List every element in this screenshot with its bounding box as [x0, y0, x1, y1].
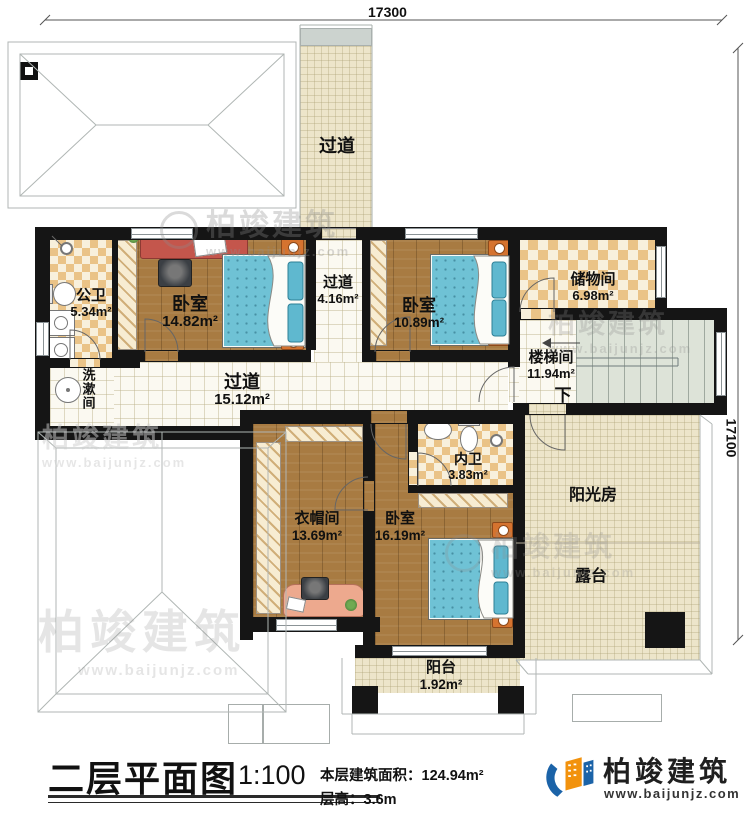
room-label-public-bath: 公卫 5.34m²	[70, 288, 111, 319]
door-gap	[70, 359, 100, 367]
room-name: 过道	[319, 136, 355, 156]
watermark: 柏竣建筑 www.baijunjz.com	[38, 596, 246, 679]
room-name: 卧室	[385, 510, 415, 527]
room-label-bedroom3: 卧室 16.19m²	[375, 511, 425, 543]
room-area: 10.89m²	[394, 315, 444, 330]
nightstand-icon	[488, 330, 510, 346]
watermark: 柏竣建筑 www.baijunjz.com	[42, 416, 186, 470]
room-label-sunroom: 阳光房	[569, 487, 617, 505]
area-label: 本层建筑面积：	[320, 768, 422, 784]
room-name: 洗漱间	[81, 368, 96, 410]
watermark-url: www.baijunjz.com	[491, 565, 635, 580]
room-label-balcony: 阳台 1.92m²	[420, 660, 463, 692]
nightstand-icon	[488, 240, 510, 256]
cloakroom-wardrobe-top	[285, 426, 363, 442]
stairs-down-label: 下	[555, 386, 572, 405]
nightstand-icon	[492, 612, 513, 628]
watermark: 柏竣建筑 www.baijunjz.com	[445, 525, 635, 580]
brand-logo: 柏竣建筑 www.baijunjz.com	[543, 748, 743, 808]
door-gap	[376, 351, 410, 361]
watermark-text: 柏竣建筑	[206, 200, 350, 244]
toilet-icon	[460, 426, 478, 452]
lower-roof-structure	[228, 704, 330, 744]
plan-height-line: 层高：3.6m	[320, 788, 397, 809]
window	[36, 322, 49, 356]
down-text: 下	[555, 386, 572, 405]
dimension-right: 17100	[723, 419, 739, 458]
room-area: 14.82m²	[162, 314, 218, 331]
door-gap	[409, 452, 417, 485]
watermark-text: 柏竣建筑	[42, 416, 186, 455]
brand-logo-icon	[543, 750, 597, 804]
floor-plan-page: 17300 17100 过道 公卫 5.34m² 卧室 14.82m² 过道 4…	[0, 0, 750, 816]
chimney-icon	[20, 62, 38, 80]
balcony-pillar	[498, 686, 524, 714]
plan-area-line: 本层建筑面积：124.94m²	[320, 764, 484, 785]
door-gap	[509, 368, 519, 402]
watermark-logo-icon	[160, 211, 198, 249]
floor-drain-icon	[490, 434, 503, 447]
watermark-logo-icon	[445, 534, 483, 572]
brand-name: 柏竣建筑	[603, 750, 731, 790]
room-name: 阳光房	[569, 487, 617, 504]
watermark-url: www.baijunjz.com	[206, 244, 350, 259]
room-name: 衣帽间	[294, 510, 339, 527]
door-gap	[529, 404, 566, 414]
room-area: 13.69m²	[292, 528, 342, 543]
sink-bowl-icon	[54, 316, 68, 330]
nightstand-icon	[281, 333, 304, 350]
room-area: 1.92m²	[420, 677, 463, 692]
wall	[408, 485, 513, 493]
sink-bowl-icon	[54, 343, 68, 357]
room-label-bedroom2: 卧室 10.89m²	[394, 296, 444, 330]
room-label-bedroom1: 卧室 14.82m²	[162, 294, 218, 331]
computer-monitor-icon	[301, 577, 329, 600]
watermark-text: 柏竣建筑	[38, 596, 246, 662]
room-name: 内卫	[454, 451, 482, 467]
room-area: 16.19m²	[375, 528, 425, 543]
room-label-corridor-mid: 过道 4.16m²	[317, 275, 358, 306]
room-name: 储物间	[570, 271, 615, 288]
room-label-corridor-main: 过道 15.12m²	[214, 372, 270, 409]
bedroom1-wardrobe	[117, 240, 137, 350]
window	[276, 619, 337, 631]
room-name: 过道	[323, 274, 353, 291]
wash-basin-drain	[66, 388, 70, 392]
window	[716, 332, 726, 396]
watermark-url: www.baijunjz.com	[548, 341, 692, 356]
lower-roof-structure	[572, 694, 662, 722]
room-name: 公卫	[76, 287, 106, 304]
height-label: 层高：	[320, 792, 364, 808]
room-area: 11.94m²	[527, 367, 575, 382]
room-name: 卧室	[402, 296, 436, 315]
room-name: 阳台	[426, 659, 456, 676]
watermark: 柏竣建筑 www.baijunjz.com	[160, 200, 350, 259]
watermark-text: 柏竣建筑	[491, 525, 635, 565]
room-label-washroom: 洗漱间	[80, 368, 95, 410]
plant-icon	[345, 599, 357, 611]
wall	[508, 227, 520, 367]
computer-monitor-icon	[158, 259, 192, 287]
dimension-top: 17300	[368, 4, 407, 20]
room-area: 15.12m²	[214, 392, 270, 409]
wall	[112, 227, 118, 358]
area-value: 124.94m²	[422, 768, 484, 784]
lower-roof-structure	[262, 704, 264, 744]
window	[405, 228, 478, 239]
sliding-door	[392, 646, 487, 656]
wall	[362, 227, 370, 350]
plan-scale: 1:100	[238, 760, 306, 791]
bed-mattress	[224, 256, 276, 346]
room-area: 3.83m²	[448, 468, 488, 482]
room-label-corridor-top: 过道	[319, 136, 355, 156]
watermark-url: www.baijunjz.com	[42, 455, 186, 470]
bedroom2-wardrobe	[370, 240, 387, 346]
watermark: 柏竣建筑 www.baijunjz.com	[548, 302, 692, 356]
room-label-cloakroom: 衣帽间 13.69m²	[292, 511, 342, 543]
watermark-url: www.baijunjz.com	[78, 662, 246, 679]
door-gap	[371, 411, 407, 423]
corridor-roof-band	[300, 28, 372, 46]
height-value: 3.6m	[364, 792, 397, 808]
brand-website: www.baijunjz.com	[604, 786, 740, 801]
room-name: 卧室	[172, 294, 208, 314]
door-gap	[364, 481, 374, 511]
room-area: 5.34m²	[70, 305, 111, 320]
door-gap	[145, 351, 178, 361]
room-name: 过道	[224, 372, 260, 392]
window	[656, 246, 666, 298]
balcony-pillar	[352, 686, 378, 714]
bedroom3-wardrobe	[418, 493, 508, 508]
room-label-storage: 储物间 6.98m²	[570, 272, 615, 303]
room-area: 4.16m²	[317, 292, 358, 307]
cloakroom-wardrobe-left	[256, 442, 281, 614]
shower-head-icon	[60, 242, 73, 255]
watermark-text: 柏竣建筑	[548, 302, 692, 341]
room-label-ensuite: 内卫 3.83m²	[448, 452, 488, 482]
terrace-pillar	[645, 612, 685, 648]
